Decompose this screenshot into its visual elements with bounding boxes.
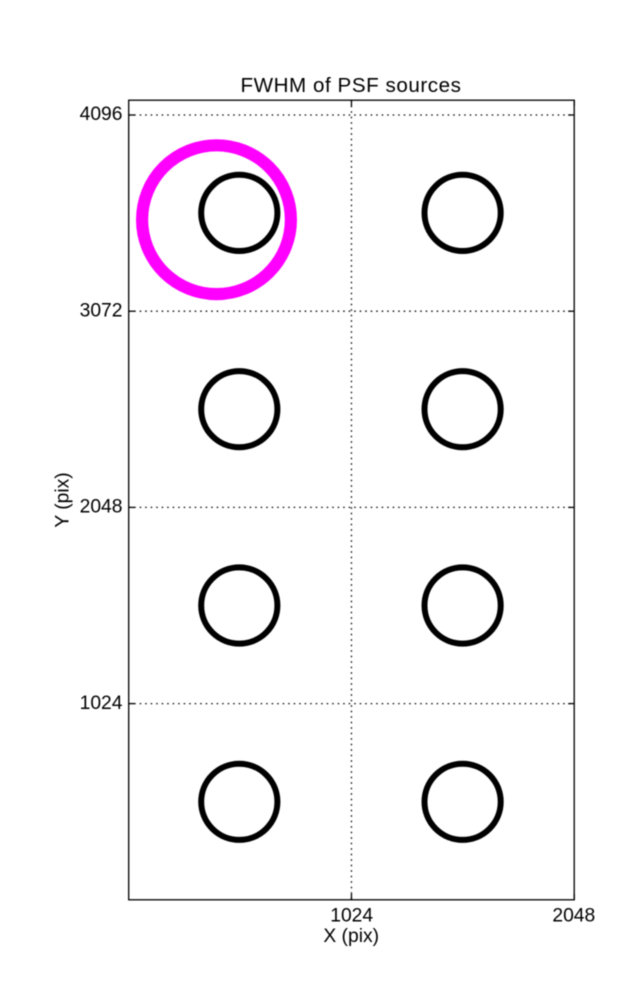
svg-text:X (pix): X (pix) <box>323 926 379 947</box>
svg-text:1024: 1024 <box>330 905 373 926</box>
svg-text:2048: 2048 <box>80 497 123 518</box>
svg-text:2048: 2048 <box>552 905 595 926</box>
svg-text:1024: 1024 <box>80 693 123 714</box>
svg-text:FWHM of PSF sources: FWHM of PSF sources <box>241 74 462 97</box>
svg-text:4096: 4096 <box>80 104 123 125</box>
svg-text:Y (pix): Y (pix) <box>53 472 74 527</box>
svg-text:3072: 3072 <box>80 300 123 321</box>
